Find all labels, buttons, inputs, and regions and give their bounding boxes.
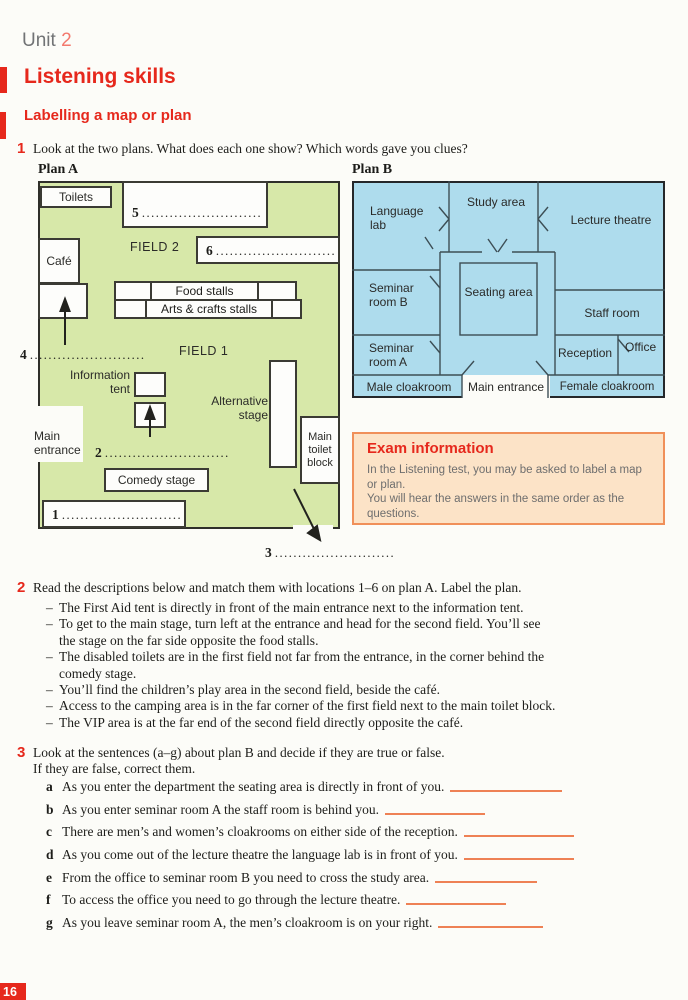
exercise2-list: – The First Aid tent is directly in fron…: [46, 600, 646, 731]
male-cloakroom-label: Male cloakroom: [358, 381, 460, 395]
staff-room-label: Staff room: [575, 307, 649, 321]
list-item: cThere are men’s and women’s cloakrooms …: [46, 824, 666, 847]
bullet-dash: –: [46, 616, 59, 649]
main-toilet-block-label: Main toilet block: [302, 431, 338, 470]
plan-a-title: Plan A: [38, 162, 78, 178]
information-tent-box: [134, 372, 166, 397]
seminar-room-a-label: Seminar room A: [369, 342, 427, 369]
list-item: – The First Aid tent is directly in fron…: [46, 600, 646, 616]
plan-b-map: Language lab Study area Lecture theatre …: [352, 181, 665, 398]
red-accent-bar: [0, 112, 6, 139]
exercise3-number: 3: [17, 744, 25, 761]
answer-line: [438, 926, 543, 928]
answer-line: [435, 881, 537, 883]
alternative-stage-box: [269, 360, 297, 468]
textbook-page: Unit 2 Listening skills Labelling a map …: [0, 0, 688, 1000]
office-label: Office: [625, 341, 656, 355]
seating-area-label: Seating area: [460, 286, 537, 300]
bullet-dash: –: [46, 649, 59, 682]
alternative-stage-label: Alternative stage: [190, 395, 268, 422]
unit-number: 2: [61, 30, 72, 51]
list-item: dAs you come out of the lecture theatre …: [46, 847, 666, 870]
bullet-dash: –: [46, 715, 59, 731]
list-item: gAs you leave seminar room A, the men’s …: [46, 915, 666, 938]
list-item: – To get to the main stage, turn left at…: [46, 616, 646, 649]
blank-1: 1 ..........................: [52, 507, 182, 523]
arts-crafts-row: Arts & crafts stalls: [114, 299, 302, 319]
field1-label: FIELD 1: [179, 344, 228, 358]
arts-crafts-label: Arts & crafts stalls: [147, 301, 273, 317]
female-cloakroom-label: Female cloakroom: [550, 381, 664, 395]
exercise1-number: 1: [17, 140, 25, 157]
cafe-box: Café: [38, 238, 80, 284]
stall-cell: [116, 283, 152, 299]
food-stalls-label: Food stalls: [152, 283, 259, 299]
answer-line: [385, 813, 485, 815]
unit-label: Unit: [22, 30, 56, 51]
toilets-box: Toilets: [40, 186, 112, 208]
exercise3-list: aAs you enter the department the seating…: [46, 779, 666, 938]
page-number: 16: [3, 985, 17, 999]
stall-cell: [116, 301, 147, 317]
plan-a-map: Toilets 5 .......................... FIE…: [38, 181, 340, 529]
exam-information-box: Exam information In the Listening test, …: [352, 432, 665, 525]
exam-info-title: Exam information: [367, 440, 494, 457]
study-area-label: Study area: [466, 196, 526, 210]
exam-info-body: In the Listening test, you may be asked …: [367, 463, 655, 521]
exercise2-intro: Read the descriptions below and match th…: [33, 580, 522, 596]
answer-line: [464, 858, 574, 860]
exercise2-number: 2: [17, 579, 25, 596]
main-entrance-label: Main entrance: [462, 381, 550, 395]
list-item: fTo access the office you need to go thr…: [46, 892, 666, 915]
blank-5: 5 ..........................: [132, 205, 262, 221]
bullet-dash: –: [46, 600, 59, 616]
food-stalls-row: Food stalls: [114, 281, 297, 301]
main-toilet-block-box: Main toilet block: [300, 416, 340, 484]
comedy-stage-box: Comedy stage: [104, 468, 209, 492]
list-item: aAs you enter the department the seating…: [46, 779, 666, 802]
list-item: – You’ll find the children’s play area i…: [46, 682, 646, 698]
bullet-dash: –: [46, 698, 59, 714]
answer-line: [406, 903, 506, 905]
page-title: Listening skills: [24, 65, 176, 89]
list-item: eFrom the office to seminar room B you n…: [46, 870, 666, 893]
lecture-theatre-label: Lecture theatre: [566, 214, 656, 228]
field2-label: FIELD 2: [130, 240, 179, 254]
answer-line: [464, 835, 574, 837]
stall-cell: [273, 301, 300, 317]
exercise1-text: Look at the two plans. What does each on…: [33, 141, 468, 157]
seminar-room-b-label: Seminar room B: [369, 282, 427, 309]
blank-4: 4 .........................: [20, 347, 146, 363]
blank-6: 6 ..........................: [206, 243, 336, 259]
red-accent-bar: [0, 67, 7, 93]
page-number-badge: 16: [0, 983, 26, 1000]
reception-label: Reception: [558, 347, 612, 361]
list-item: bAs you enter seminar room A the staff r…: [46, 802, 666, 825]
list-item: – Access to the camping area is in the f…: [46, 698, 646, 714]
bullet-dash: –: [46, 682, 59, 698]
exercise3-intro: Look at the sentences (a–g) about plan B…: [33, 745, 445, 778]
entrance-gate-box: [38, 283, 88, 319]
main-entrance-label: Main entrance: [34, 430, 88, 457]
section-subtitle: Labelling a map or plan: [24, 107, 192, 124]
cafe-label: Café: [46, 254, 71, 268]
stall-cell: [259, 283, 295, 299]
comedy-stage-label: Comedy stage: [118, 473, 195, 487]
first-aid-box: [134, 402, 166, 428]
answer-line: [450, 790, 562, 792]
exit-gap: [293, 525, 333, 531]
toilets-label: Toilets: [59, 190, 93, 204]
plan-b-title: Plan B: [352, 162, 392, 178]
unit-header: Unit 2: [22, 30, 72, 52]
list-item: – The VIP area is at the far end of the …: [46, 715, 646, 731]
list-item: – The disabled toilets are in the first …: [46, 649, 646, 682]
blank-3: 3 ..........................: [265, 545, 395, 561]
language-lab-label: Language lab: [370, 205, 434, 232]
information-tent-label: Information tent: [64, 369, 130, 396]
blank-2: 2 ...........................: [95, 445, 230, 461]
